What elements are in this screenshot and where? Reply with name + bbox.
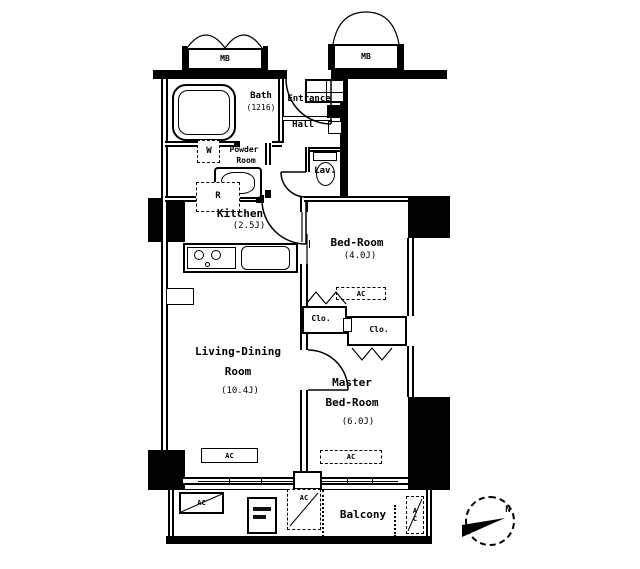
hall-door-arc [262,200,306,244]
living-dining-label-2: Room [225,366,252,377]
master-bedroom-size-label: (6.0J) [342,418,375,427]
master-bedroom-label-2: Bed-Room [326,397,379,408]
mb-right-label: MB [361,53,371,61]
kitchen-label: Kitchen [217,208,263,219]
closet-left-label: Clo. [311,315,330,323]
bath-size-label: (1216) [247,104,276,112]
floor-plan: AC AC AC AC AC AC N [0,0,640,569]
refrigerator-label: R [215,192,220,201]
kitchen-size-label: (2.5J) [233,222,266,231]
powder-room-label-2: Room [236,157,255,165]
washer-label: W [206,147,211,156]
entrance-label: Entrance [287,95,330,104]
balcony-ac-right-diagonal [408,499,422,531]
balcony-ac-mid-diagonal [290,493,318,526]
living-dining-label-1: Living-Dining [195,346,281,357]
master-bedroom-label-1: Master [332,377,372,388]
compass-needle [462,518,505,537]
bedroom-size-label: (4.0J) [344,252,377,261]
hall-label: Hall [292,121,314,130]
balcony-label: Balcony [340,509,386,520]
closet-left-bifold-marks [306,292,346,304]
bath-label: Bath [250,92,272,101]
bedroom-label: Bed-Room [331,237,384,248]
mb-right-door-arcs [333,12,399,44]
living-dining-size-label: (10.4J) [221,387,259,396]
closet-right-bifold-marks [352,348,392,360]
lavatory-label: Lav. [314,167,336,176]
mb-left-label: MB [220,55,230,63]
closet-right-label: Clo. [369,326,388,334]
mb-left-door-arcs [187,35,262,48]
lavatory-door-arc [281,172,306,197]
powder-room-label-1: Powder [230,146,259,154]
plan-linework [0,0,640,569]
balcony-ac-left-diagonal [181,494,222,512]
